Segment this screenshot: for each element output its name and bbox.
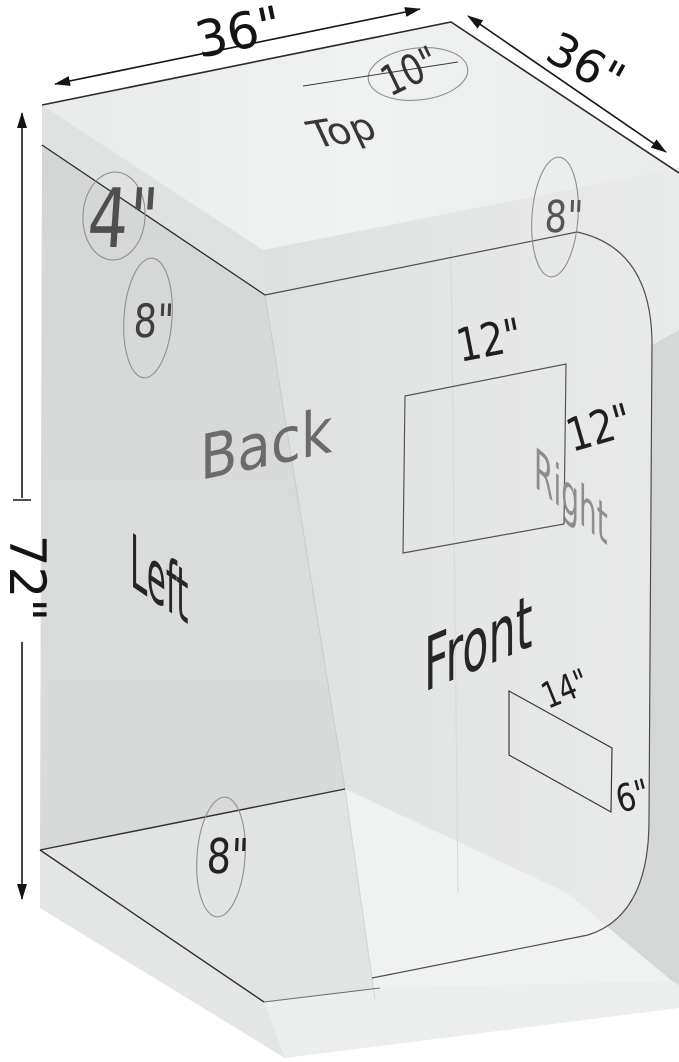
height-dimension-label: 72" <box>0 535 56 622</box>
right-duct-label: 8" <box>544 192 585 243</box>
rear-duct-label: 8" <box>205 830 249 885</box>
box-diagram-svg: 36" 36" 72" Top Back Left Right Front 10… <box>0 0 679 1062</box>
left-duct-label: 8" <box>133 294 176 348</box>
diagram-stage: 36" 36" 72" Top Back Left Right Front 10… <box>0 0 679 1062</box>
top-left-vent-label: 4" <box>85 172 162 267</box>
